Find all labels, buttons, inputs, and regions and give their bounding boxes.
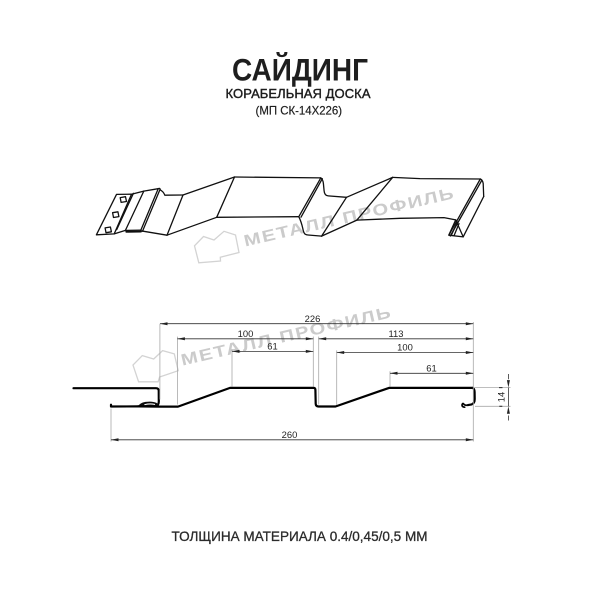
svg-text:100: 100 <box>397 342 413 353</box>
svg-text:100: 100 <box>238 328 254 339</box>
svg-text:226: 226 <box>305 313 321 324</box>
svg-text:КОРАБЕЛЬНАЯ ДОСКА: КОРАБЕЛЬНАЯ ДОСКА <box>226 86 371 101</box>
svg-text:(МП СК-14Х226): (МП СК-14Х226) <box>256 104 343 118</box>
svg-text:260: 260 <box>282 429 298 440</box>
svg-text:113: 113 <box>389 328 404 339</box>
svg-text:61: 61 <box>267 341 277 352</box>
svg-text:14: 14 <box>496 392 507 402</box>
svg-text:61: 61 <box>426 362 436 373</box>
svg-text:САЙДИНГ: САЙДИНГ <box>232 51 368 87</box>
svg-text:ТОЛЩИНА МАТЕРИАЛА 0.4/0,45/0,5: ТОЛЩИНА МАТЕРИАЛА 0.4/0,45/0,5 ММ <box>172 528 428 544</box>
